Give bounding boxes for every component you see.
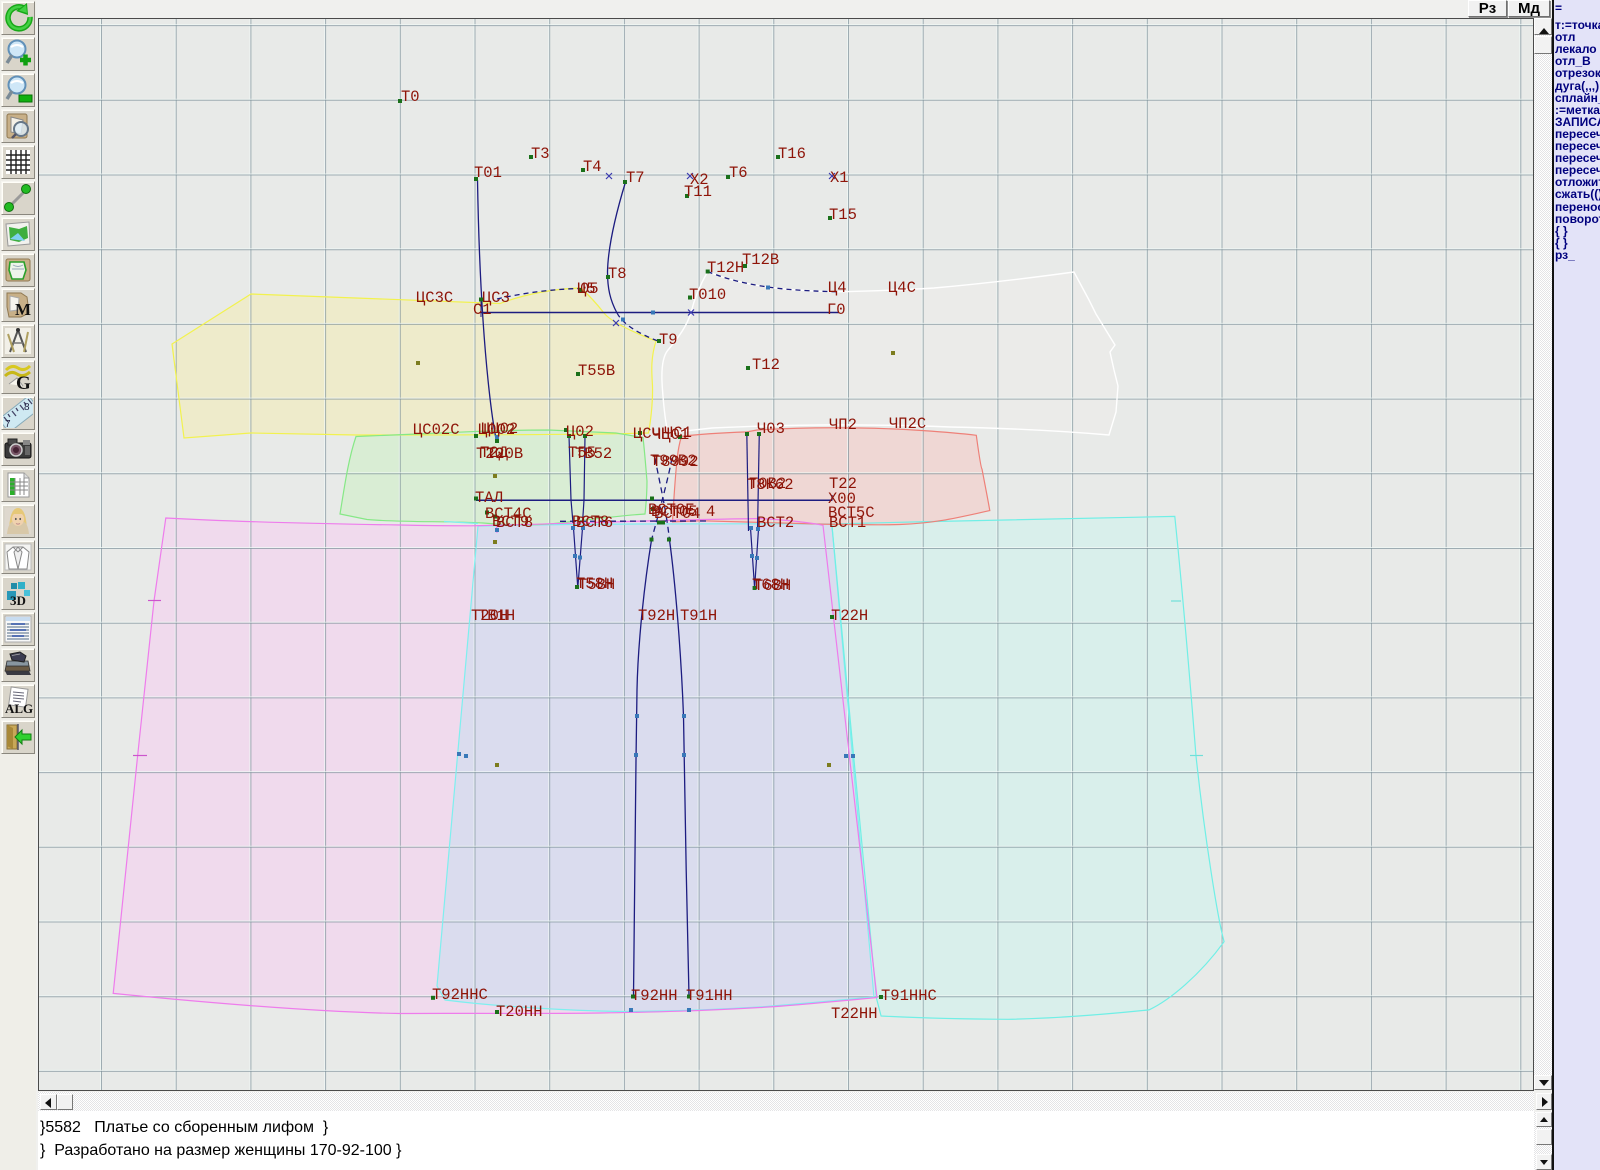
svg-text:Т22НН: Т22НН [831, 1005, 878, 1023]
svg-text:M: M [15, 300, 31, 319]
svg-text:Г0: Г0 [827, 301, 846, 319]
svg-text:Т3: Т3 [531, 145, 550, 163]
svg-text:ЧС1: ЧС1 [664, 424, 692, 442]
svg-text:Т7: Т7 [626, 169, 645, 187]
svg-text:Т11: Т11 [684, 183, 712, 201]
svg-text:Т6ВН: Т6ВН [754, 577, 791, 595]
svg-text:Ц4: Ц4 [828, 279, 847, 297]
svg-text:ЦЦ02: ЦЦ02 [481, 420, 518, 438]
svg-text:Ц4С: Ц4С [888, 279, 916, 297]
svg-text:Т9: Т9 [659, 331, 678, 349]
svg-text:ЧП2: ЧП2 [829, 416, 857, 434]
svg-text:С1: С1 [473, 301, 492, 319]
svg-text:ALG: ALG [5, 701, 33, 716]
svg-text:G: G [16, 373, 31, 392]
svg-text:05: 05 [580, 280, 599, 298]
svg-text:Т5ВН: Т5ВН [578, 576, 615, 594]
svg-text:ТВ1Н: ТВ1Н [478, 607, 515, 625]
svg-text:Т91Н: Т91Н [680, 607, 717, 625]
svg-text:Т01: Т01 [474, 164, 502, 182]
svg-text:Т92ННС: Т92ННС [432, 986, 488, 1004]
svg-text:ЦС3С: ЦС3С [416, 289, 453, 307]
svg-text:Т12В: Т12В [742, 251, 779, 269]
svg-text:4: 4 [706, 503, 715, 521]
svg-text:ВСТ8: ВСТ8 [496, 514, 533, 532]
svg-text:Т8992: Т8992 [652, 453, 699, 471]
svg-text:Т92Н: Т92Н [638, 607, 675, 625]
svg-text:Т91НН: Т91НН [686, 987, 733, 1005]
svg-text:Т2Д: Т2Д [480, 444, 509, 462]
svg-text:Т0В2: Т0В2 [749, 475, 786, 493]
svg-text:Т55В: Т55В [578, 362, 615, 380]
svg-text:ТВ52: ТВ52 [575, 445, 612, 463]
svg-text:7: 7 [5, 419, 11, 428]
svg-text:Ц02: Ц02 [566, 423, 594, 441]
svg-text:Т12: Т12 [752, 356, 780, 374]
svg-text:Т010: Т010 [689, 286, 726, 304]
svg-text:ЦС02С: ЦС02С [413, 421, 460, 439]
svg-text:Т0: Т0 [401, 88, 420, 106]
svg-text:Т4: Т4 [583, 158, 602, 176]
svg-text:ВСТ1: ВСТ1 [829, 514, 866, 532]
svg-text:Т16: Т16 [778, 145, 806, 163]
svg-text:Ч03: Ч03 [757, 420, 785, 438]
svg-text:Т20НН: Т20НН [496, 1003, 543, 1021]
svg-text:Т22Н: Т22Н [831, 607, 868, 625]
svg-text:ЧП2С: ЧП2С [889, 415, 926, 433]
svg-text:3D: 3D [10, 593, 26, 608]
svg-text:Т92НН: Т92НН [631, 987, 678, 1005]
svg-text:Т6: Т6 [729, 164, 748, 182]
svg-text:ВСТ2: ВСТ2 [757, 514, 794, 532]
svg-text:8: 8 [24, 402, 30, 413]
svg-text:ВСТ04: ВСТ04 [654, 505, 701, 523]
svg-text:ВСТ6: ВСТ6 [576, 514, 613, 532]
svg-text:Х1: Х1 [830, 169, 849, 187]
svg-text:Т91ННС: Т91ННС [881, 987, 937, 1005]
svg-text:Т12Н: Т12Н [707, 259, 744, 277]
svg-text:Т8: Т8 [608, 265, 627, 283]
svg-text:Т15: Т15 [829, 206, 857, 224]
